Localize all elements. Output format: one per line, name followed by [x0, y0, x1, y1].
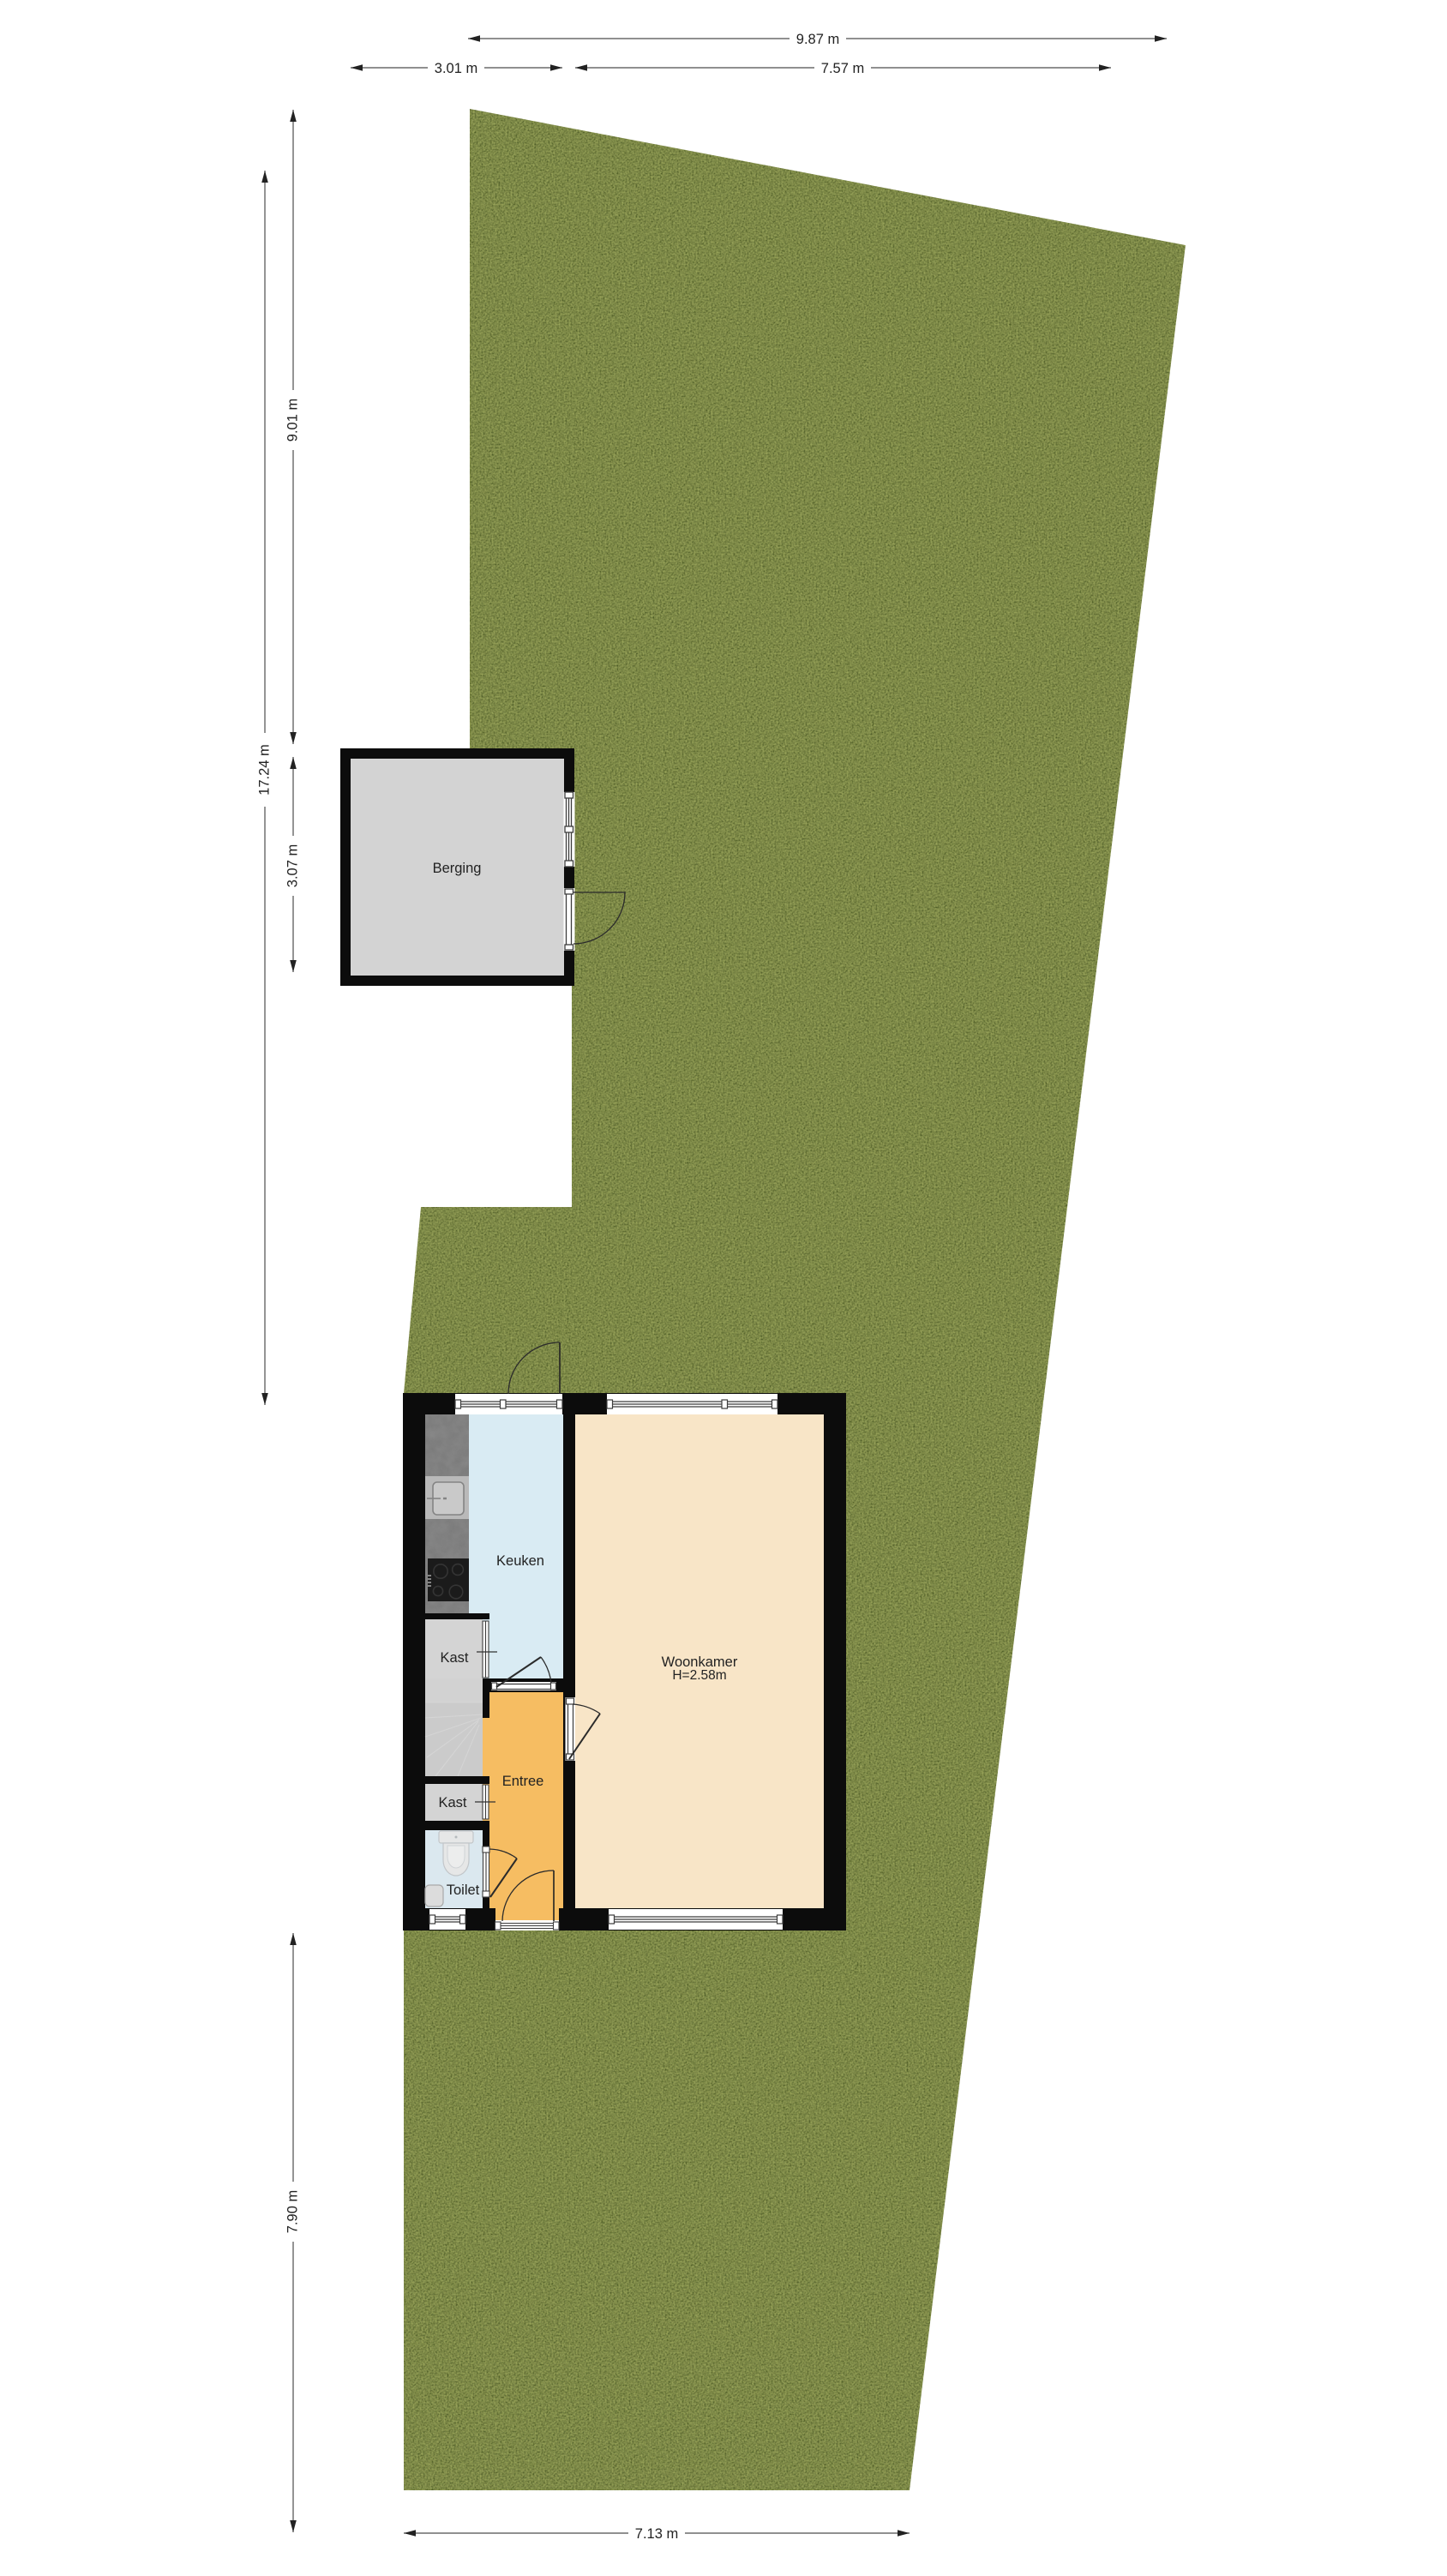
- svg-text:9.01 m: 9.01 m: [285, 399, 300, 441]
- svg-text:H=2.58m: H=2.58m: [672, 1668, 726, 1683]
- svg-text:Toilet: Toilet: [447, 1882, 480, 1898]
- svg-text:7.90 m: 7.90 m: [285, 2190, 300, 2233]
- svg-text:Kast: Kast: [438, 1795, 466, 1810]
- svg-text:Kast: Kast: [440, 1650, 468, 1666]
- svg-text:7.13 m: 7.13 m: [635, 2526, 678, 2542]
- svg-text:Entree: Entree: [502, 1774, 544, 1789]
- svg-text:Keuken: Keuken: [496, 1553, 544, 1569]
- svg-text:3.07 m: 3.07 m: [285, 844, 300, 887]
- svg-text:17.24 m: 17.24 m: [256, 744, 272, 796]
- svg-text:9.87 m: 9.87 m: [796, 32, 839, 47]
- svg-text:3.01 m: 3.01 m: [435, 61, 477, 76]
- svg-text:Berging: Berging: [433, 861, 482, 876]
- svg-text:7.57 m: 7.57 m: [821, 61, 864, 76]
